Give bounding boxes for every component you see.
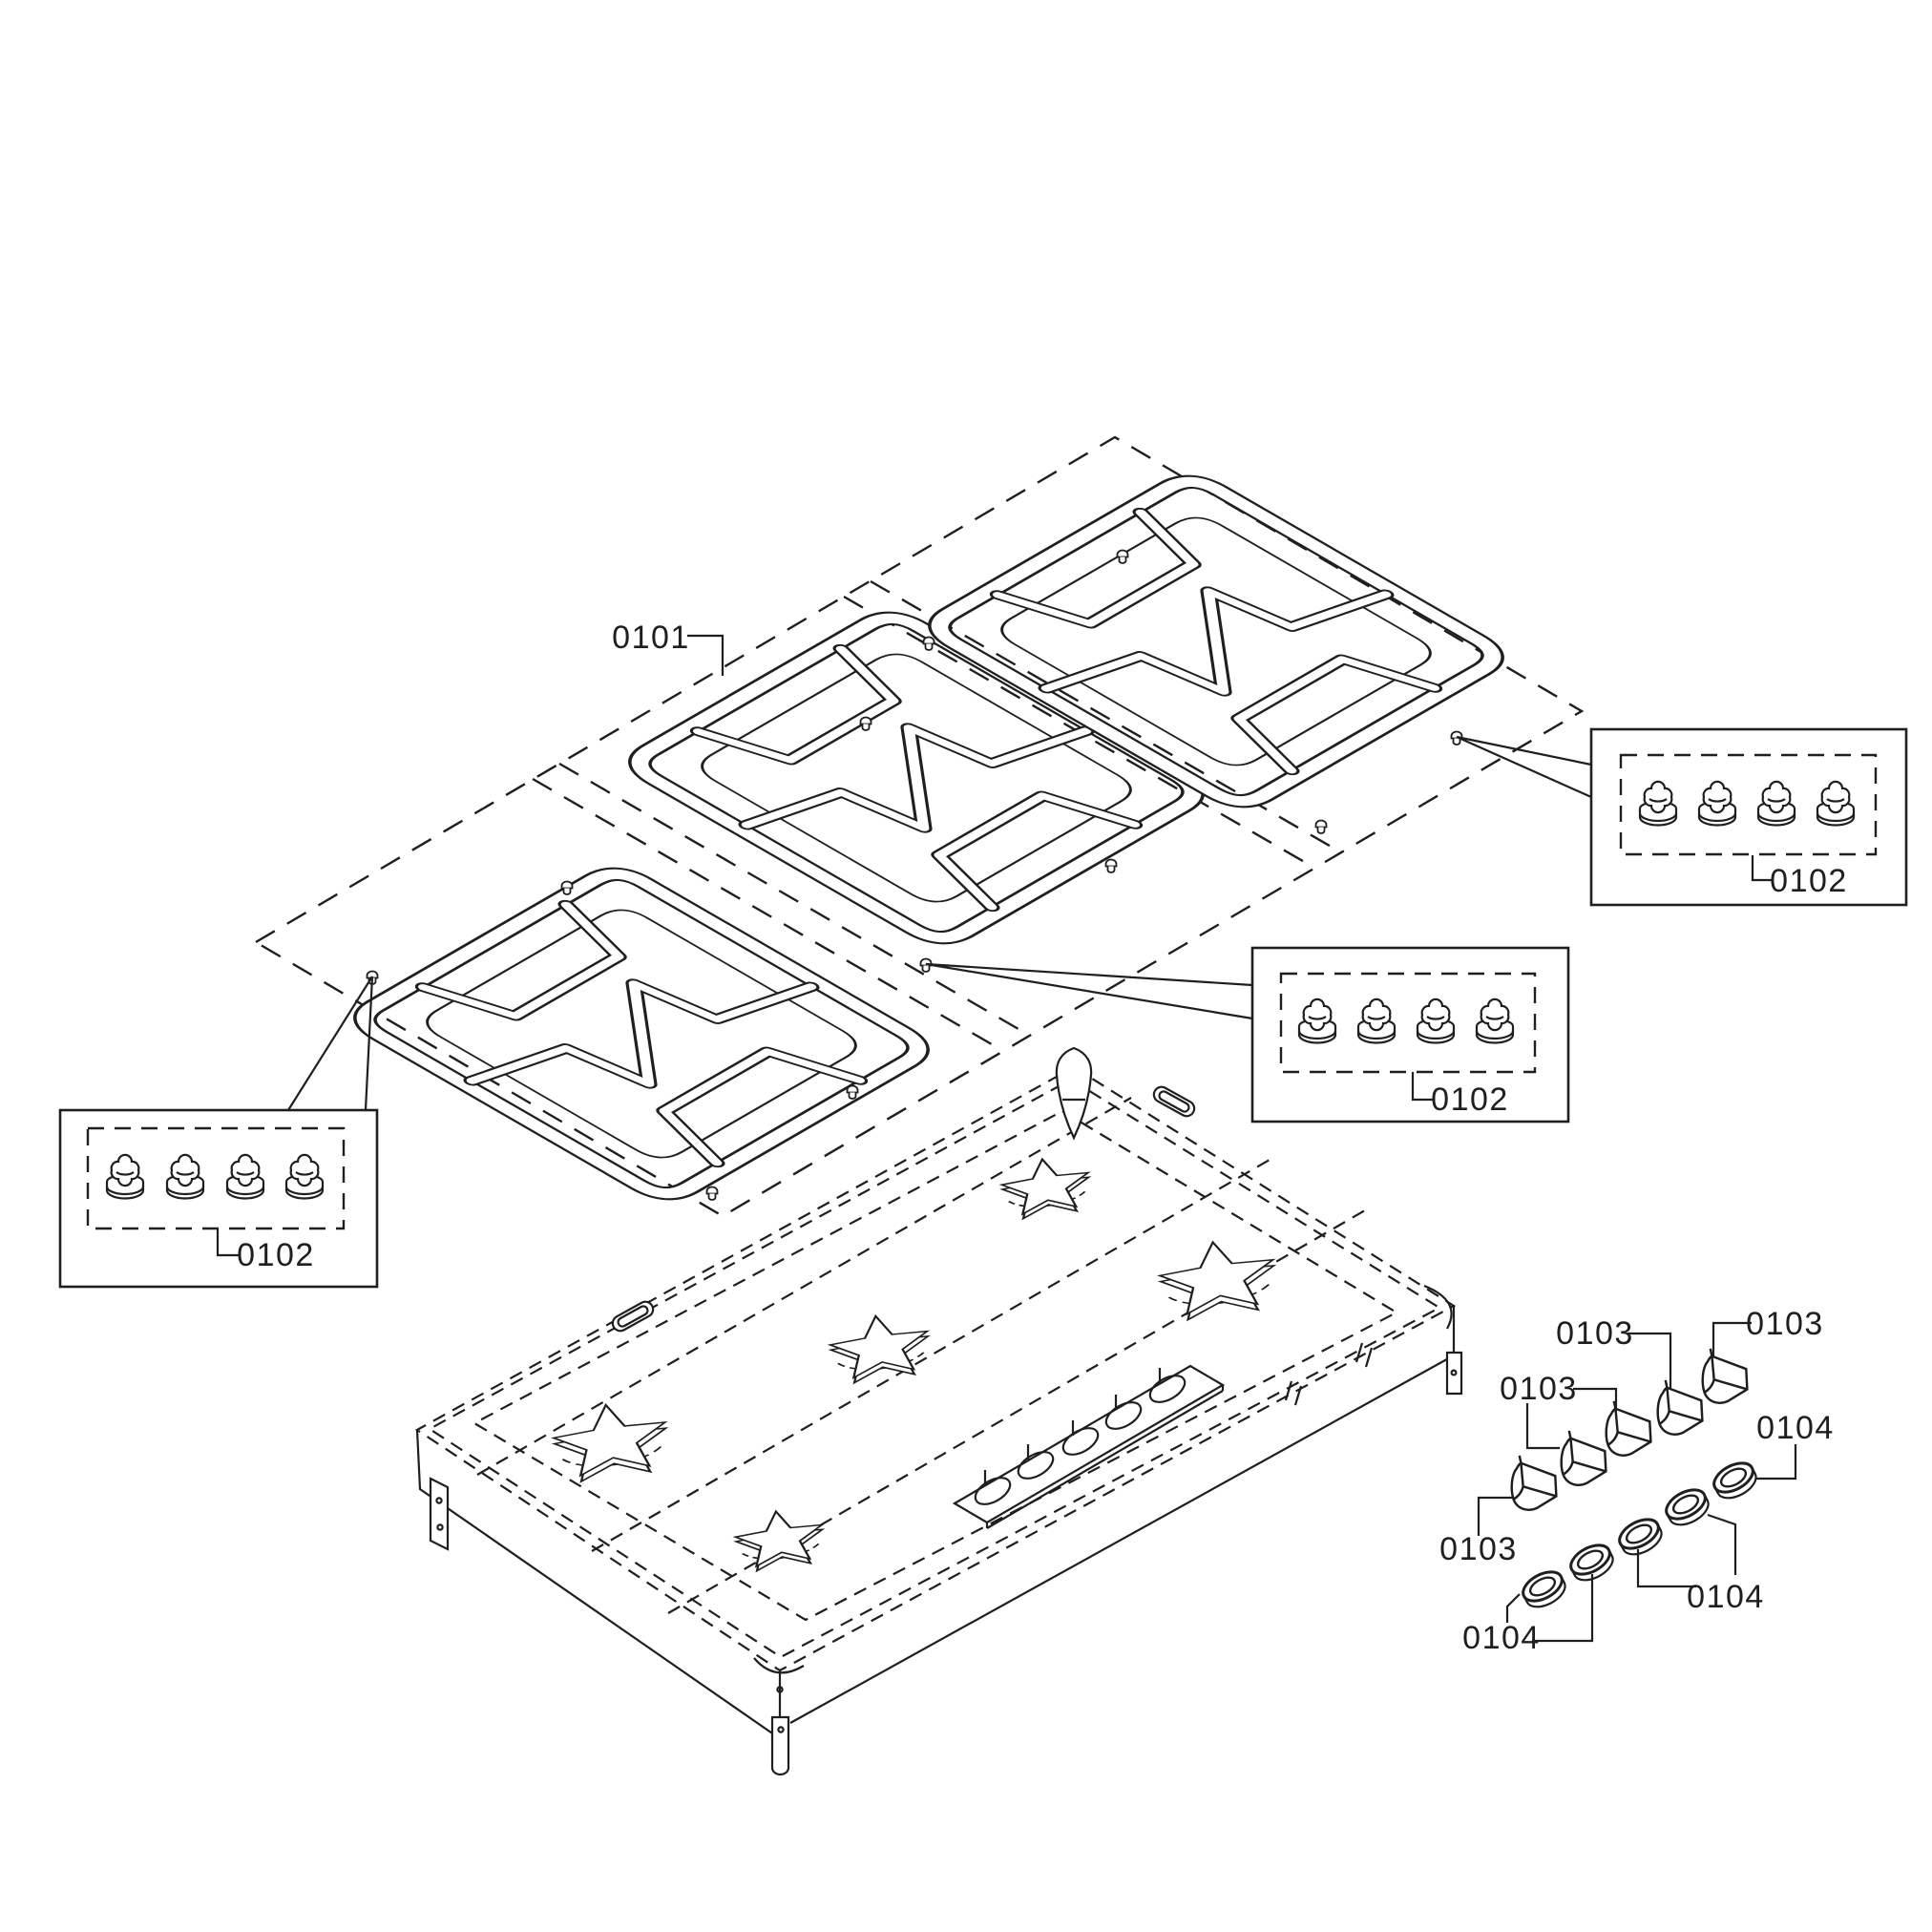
burner-star (999, 1153, 1094, 1221)
part-label-0102: 0102 (1770, 863, 1848, 899)
feet-callout-box-right: 0102 (1591, 729, 1906, 905)
knob-trim-ring (1566, 1540, 1618, 1586)
callout-0101: 0101 (612, 619, 723, 676)
burner-grate-left (352, 867, 931, 1201)
exploded-parts-diagram: 0101 0102 0102 0102 (0, 0, 1932, 1932)
grate-foot-screw (1316, 821, 1327, 834)
knob-trim-ring (1615, 1514, 1667, 1561)
tray-leg-right (1447, 1353, 1461, 1394)
part-label-0103: 0103 (1439, 1531, 1518, 1567)
burner-star (1156, 1234, 1279, 1323)
part-label-0104: 0104 (1462, 1620, 1541, 1656)
grate-foot-screw (848, 1086, 858, 1100)
rim-locator-oval (610, 1299, 656, 1333)
part-label-0103: 0103 (1746, 1306, 1824, 1342)
tray-outer-rim (417, 1067, 1454, 1670)
feet-callout-box-middle: 0102 (1252, 948, 1568, 1122)
grate-foot-screw (562, 882, 573, 895)
burner-star (550, 1397, 671, 1484)
feet-callout-box-left: 0102 (60, 1110, 377, 1287)
burner-star (733, 1505, 828, 1573)
burner-star (827, 1310, 933, 1386)
part-label-0104: 0104 (1756, 1410, 1835, 1446)
rim-locator-oval (1151, 1084, 1197, 1119)
grate-foot-screw (1118, 551, 1128, 564)
grate-foot-screw (1106, 860, 1117, 873)
grate-foot-screw (861, 718, 871, 731)
part-label-0102: 0102 (237, 1237, 315, 1273)
grate-foot-screw (924, 638, 934, 651)
knob-trim-ring (1662, 1484, 1713, 1531)
control-knob (1606, 1401, 1651, 1456)
part-label-0103: 0103 (1500, 1371, 1578, 1407)
tray-pipe (592, 1160, 1270, 1551)
control-knob (1512, 1456, 1557, 1510)
part-label-0103: 0103 (1556, 1315, 1634, 1352)
control-knob (1703, 1349, 1748, 1403)
part-label-0104: 0104 (1687, 1579, 1765, 1615)
cooktop-base (417, 1048, 1461, 1774)
part-label-0101: 0101 (612, 619, 690, 656)
grate-foot-screw (707, 1187, 718, 1201)
tray-bracket-left (430, 1479, 448, 1549)
knobs-and-rings: 0103 0103 0103 0103 0104 0104 0104 (1439, 1306, 1835, 1656)
tray-inner-box (474, 1111, 1396, 1620)
part-label-0102: 0102 (1431, 1081, 1509, 1118)
knob-trim-ring (1710, 1458, 1761, 1504)
control-knob (1658, 1380, 1703, 1435)
control-knob (1562, 1431, 1606, 1485)
knob-trim-ring (1519, 1566, 1570, 1613)
tray-corner-cap-right (1424, 1286, 1452, 1329)
